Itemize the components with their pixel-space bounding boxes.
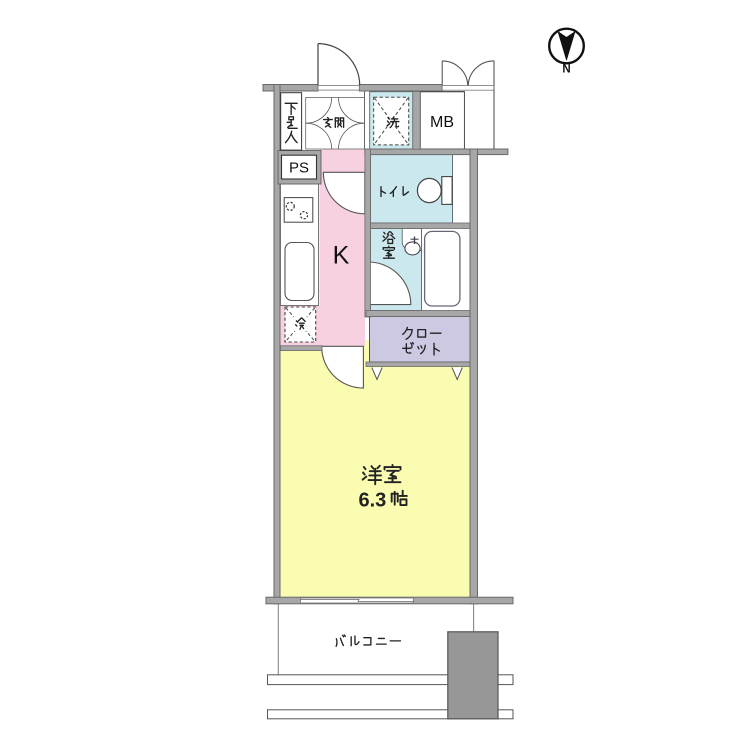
svg-text:6.3: 6.3 — [358, 490, 386, 512]
svg-text:PS: PS — [289, 160, 309, 177]
svg-text:K: K — [333, 242, 350, 270]
svg-text:MB: MB — [430, 114, 454, 131]
svg-text:N: N — [562, 64, 570, 76]
